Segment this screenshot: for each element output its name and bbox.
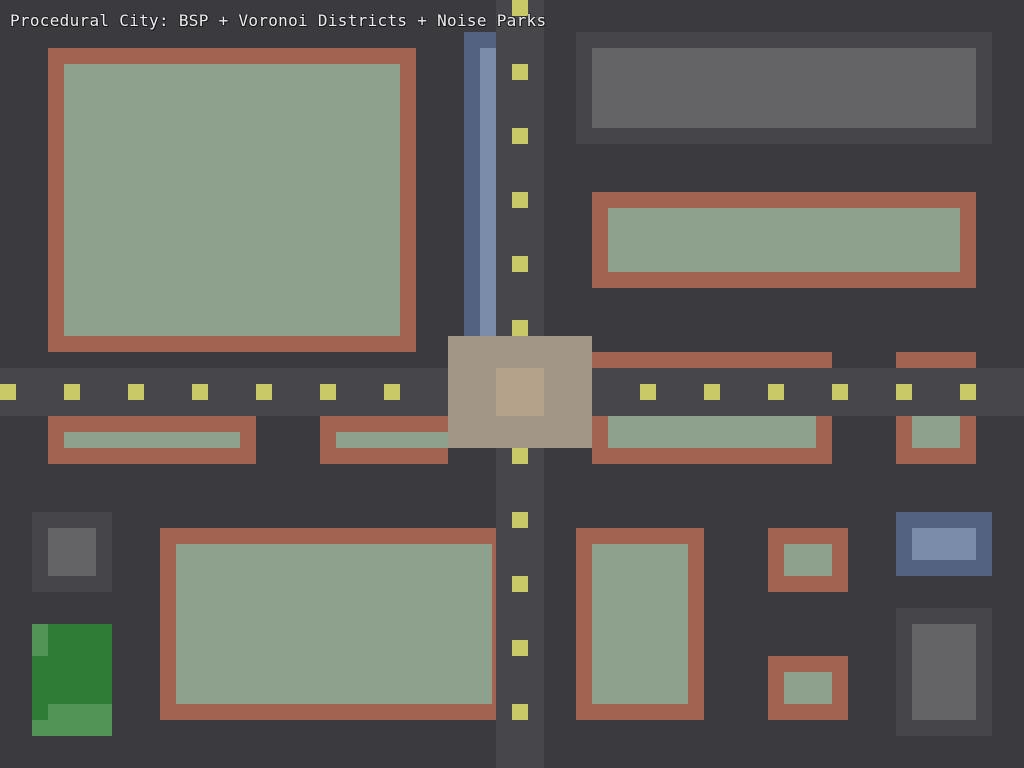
lane-dash: [320, 384, 336, 400]
residential-block-se-3-roof: [784, 672, 832, 704]
map-title: Procedural City: BSP + Voronoi Districts…: [10, 11, 546, 30]
roadside-block-west-1-roof: [64, 432, 240, 448]
park-sw-meadow-1: [32, 624, 48, 656]
industrial-block-ne-top: [592, 48, 976, 128]
lane-dash: [512, 704, 528, 720]
roadside-block-west-2-roof: [336, 432, 448, 448]
roadside-strip-east-1-wall: [592, 352, 832, 368]
lane-dash: [832, 384, 848, 400]
lane-dash: [960, 384, 976, 400]
city-canvas: Procedural City: BSP + Voronoi Districts…: [0, 0, 1024, 768]
roadside-block-east-2-roof: [912, 416, 960, 448]
lane-dash: [512, 576, 528, 592]
river-highlight: [480, 48, 496, 336]
park-sw-meadow-3: [32, 720, 112, 736]
residential-block-nw-roof: [64, 64, 400, 336]
residential-block-se-1-roof: [592, 544, 688, 704]
lane-dash: [192, 384, 208, 400]
lane-dash: [384, 384, 400, 400]
lane-dash: [512, 192, 528, 208]
roadside-strip-east-2-wall: [896, 352, 976, 368]
park-sw-meadow-2: [48, 704, 112, 720]
lane-dash: [256, 384, 272, 400]
lane-dash: [512, 128, 528, 144]
plaza-core: [496, 368, 544, 416]
lane-dash: [704, 384, 720, 400]
roadside-block-east-1-roof: [608, 416, 816, 448]
lane-dash: [896, 384, 912, 400]
lane-dash: [512, 640, 528, 656]
residential-block-s-roof: [176, 544, 492, 704]
residential-block-ne-roof: [608, 208, 960, 272]
industrial-block-sw-top: [48, 528, 96, 576]
lane-dash: [64, 384, 80, 400]
lane-dash: [768, 384, 784, 400]
lane-dash: [512, 256, 528, 272]
lane-dash: [512, 448, 528, 464]
waterfront-block-se-top: [912, 528, 976, 560]
lane-dash: [512, 320, 528, 336]
residential-block-se-2-roof: [784, 544, 832, 576]
lane-dash: [640, 384, 656, 400]
lane-dash: [512, 512, 528, 528]
lane-dash: [128, 384, 144, 400]
lane-dash: [0, 384, 16, 400]
industrial-block-se-top: [912, 624, 976, 720]
lane-dash: [512, 64, 528, 80]
